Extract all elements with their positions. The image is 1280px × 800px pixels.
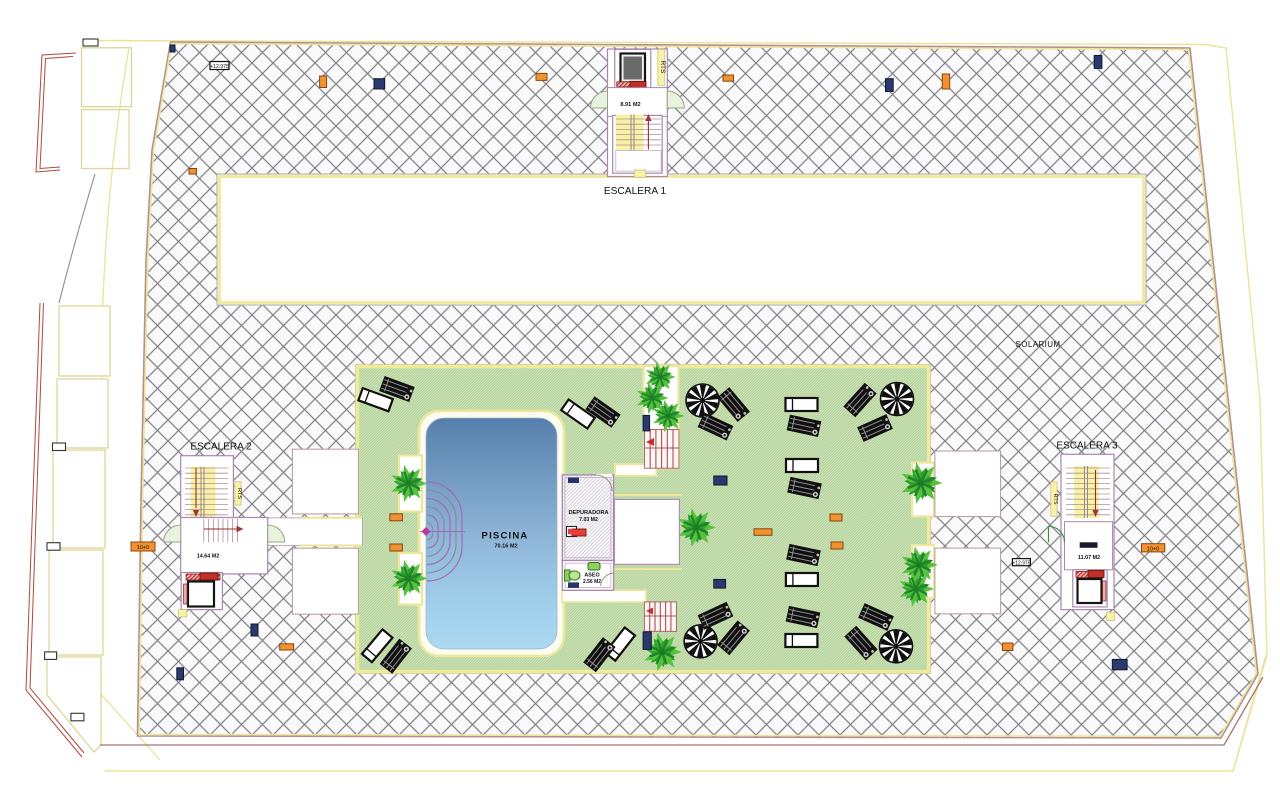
svg-text:7.03 M2: 7.03 M2 [579, 517, 598, 523]
svg-text:10+0: 10+0 [137, 545, 149, 551]
svg-text:RTS: RTS [1052, 493, 1058, 504]
svg-text:8.91 M2: 8.91 M2 [620, 102, 640, 108]
svg-text:14.64 M2: 14.64 M2 [197, 554, 219, 560]
svg-text:PISCINA: PISCINA [482, 531, 529, 542]
svg-text:+12.975: +12.975 [210, 64, 229, 70]
svg-text:RTS: RTS [236, 488, 242, 499]
svg-text:SOLARIUM: SOLARIUM [1016, 340, 1061, 349]
svg-text:ESCALERA 2: ESCALERA 2 [190, 442, 252, 453]
svg-text:RTS: RTS [659, 61, 666, 74]
svg-text:70.16 M2: 70.16 M2 [494, 544, 517, 550]
svg-text:DEPURADORA: DEPURADORA [568, 510, 608, 516]
svg-text:ASEO: ASEO [584, 573, 599, 579]
svg-text:ESCALERA 3: ESCALERA 3 [1056, 441, 1118, 452]
svg-text:ESCALERA 1: ESCALERA 1 [604, 186, 667, 197]
svg-text:+12.975: +12.975 [1012, 560, 1030, 566]
svg-text:10+0: 10+0 [1147, 546, 1159, 552]
svg-text:11.07 M2: 11.07 M2 [1078, 555, 1100, 561]
svg-text:2.56 M2: 2.56 M2 [583, 579, 601, 585]
